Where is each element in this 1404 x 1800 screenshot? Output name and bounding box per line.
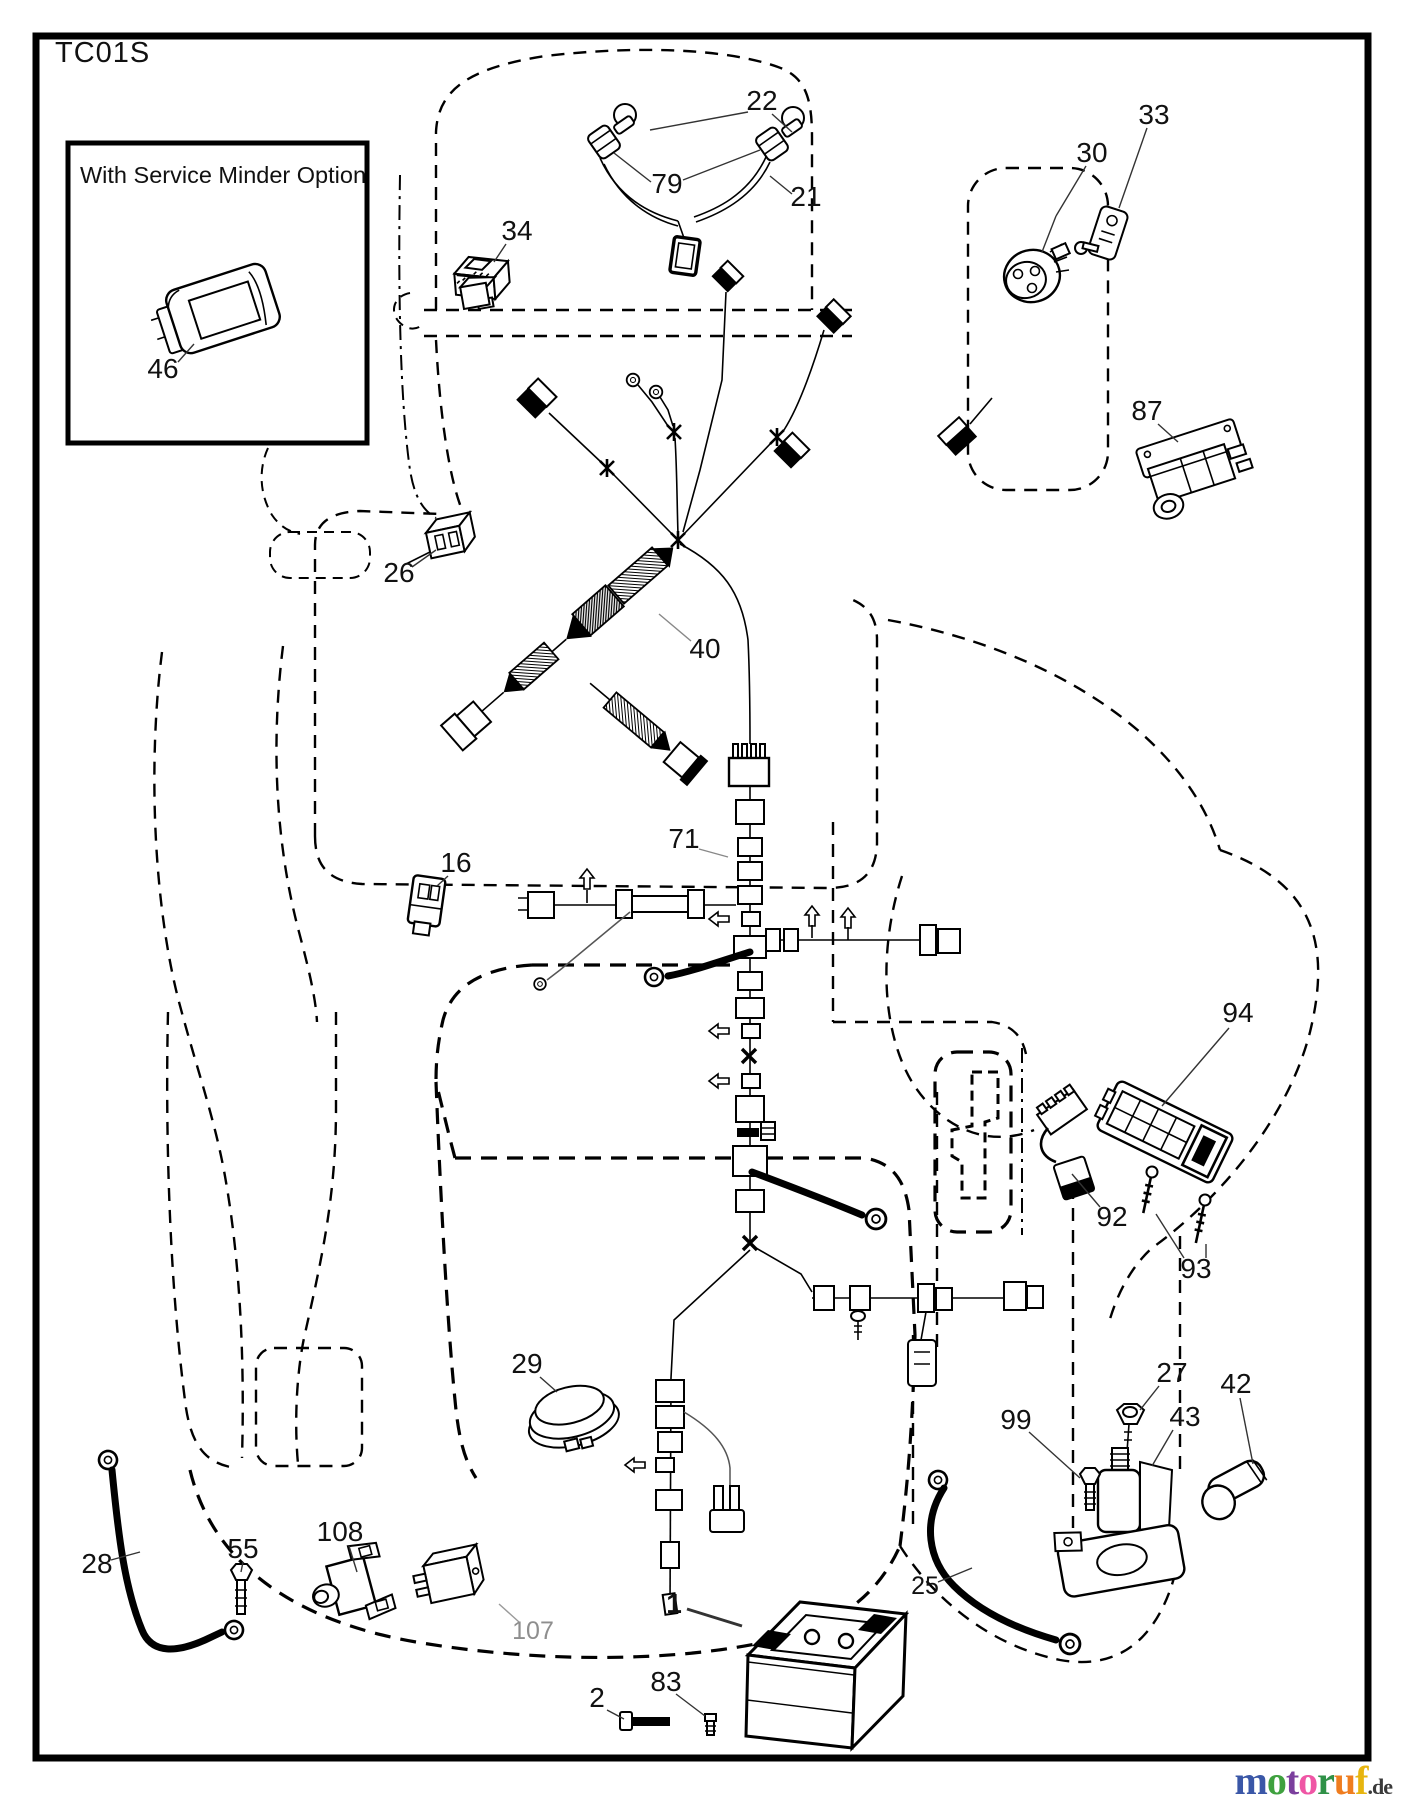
part-42-terminal-boot-icon <box>1194 1457 1275 1525</box>
part-27-nut-icon <box>1117 1404 1144 1452</box>
part-label-83: 83 <box>650 1666 681 1697</box>
part-94-control-module-icon <box>1090 1077 1234 1184</box>
part-label-33: 33 <box>1138 99 1169 130</box>
leader-line-33 <box>1119 128 1147 208</box>
part-label-27: 27 <box>1156 1357 1187 1388</box>
leader-line-94 <box>1162 1028 1229 1106</box>
part-label-99: 99 <box>1000 1404 1031 1435</box>
part-label-94: 94 <box>1222 997 1253 1028</box>
diagram-code-title: TC01S <box>55 37 150 69</box>
leader-line-40 <box>659 614 691 641</box>
part-label-43: 43 <box>1169 1401 1200 1432</box>
leader-line-79 <box>614 153 651 182</box>
leader-line-30 <box>1042 216 1056 252</box>
connector-icon <box>817 299 851 333</box>
part-label-25: 25 <box>911 1572 939 1600</box>
part-28-battery-cable-icon <box>96 1448 245 1649</box>
part-label-30: 30 <box>1076 137 1107 168</box>
part-83-bolt-icon <box>705 1714 716 1735</box>
part-label-79: 79 <box>651 168 682 199</box>
part-label-2: 2 <box>589 1682 605 1713</box>
part-26-fuse-holder-icon <box>406 512 477 564</box>
service-minder-inset: With Service Minder Option <box>68 143 367 443</box>
part-1-battery-icon <box>746 1602 906 1748</box>
part-87-solenoid-icon <box>1134 417 1259 522</box>
leader-line-27 <box>1140 1386 1159 1410</box>
leader-line-71 <box>699 849 728 857</box>
part-29-horn-icon <box>521 1377 626 1460</box>
part-label-71: 71 <box>668 823 699 854</box>
inset-title: With Service Minder Option <box>80 162 366 188</box>
part-label-42: 42 <box>1220 1368 1251 1399</box>
leader-line-29 <box>540 1377 557 1392</box>
part-label-107: 107 <box>512 1617 554 1645</box>
leader-line-42 <box>1240 1398 1253 1464</box>
part-30-ignition-switch-icon <box>999 243 1070 308</box>
part-107-relay-icon <box>410 1544 486 1605</box>
part-label-26: 26 <box>383 557 414 588</box>
leader-line-22 <box>650 112 748 130</box>
part-2-bolt-icon <box>620 1712 670 1730</box>
part-label-87: 87 <box>1131 395 1162 426</box>
leader-line-79 <box>683 150 760 180</box>
part-40-main-harness-icon <box>441 261 992 786</box>
multi-pin-connector-icon <box>729 744 769 786</box>
shift-gate-outline <box>935 1048 1022 1235</box>
part-label-108: 108 <box>317 1516 364 1547</box>
connector-icon <box>517 378 557 418</box>
part-label-93: 93 <box>1180 1253 1211 1284</box>
wiring-diagram-canvas: TC01S With Service Minder Option <box>0 0 1404 1800</box>
two-pin-connector-icon <box>710 1486 744 1532</box>
leader-line-1 <box>687 1609 742 1626</box>
parts-diagram-page: TC01S With Service Minder Option <box>0 0 1404 1800</box>
part-label-92: 92 <box>1096 1201 1127 1232</box>
part-label-46: 46 <box>147 353 178 384</box>
part-92-connector-icon <box>1034 1085 1095 1200</box>
part-label-28: 28 <box>81 1548 112 1579</box>
leader-line-21 <box>770 176 792 194</box>
part-21-22-79-headlight-harness-icon <box>586 104 804 276</box>
leader-line-43 <box>1152 1430 1173 1466</box>
part-label-22: 22 <box>746 85 777 116</box>
part-108-solenoid-icon <box>302 1538 396 1631</box>
part-label-16: 16 <box>440 847 471 878</box>
leader-line-83 <box>676 1694 705 1716</box>
part-label-40: 40 <box>689 633 720 664</box>
part-label-21: 21 <box>790 181 821 212</box>
part-label-1: 1 <box>666 1588 682 1619</box>
leader-line-34 <box>494 244 506 262</box>
part-label-34: 34 <box>501 215 532 246</box>
part-33-key-module-icon <box>1075 205 1129 261</box>
part-71-chassis-harness-icon <box>518 744 1043 1615</box>
leader-line-30 <box>1056 166 1086 216</box>
connector-icon <box>712 261 743 292</box>
part-label-29: 29 <box>511 1348 542 1379</box>
part-label-55: 55 <box>227 1533 258 1564</box>
motoruf-watermark: motoruf.de <box>1235 1758 1394 1800</box>
